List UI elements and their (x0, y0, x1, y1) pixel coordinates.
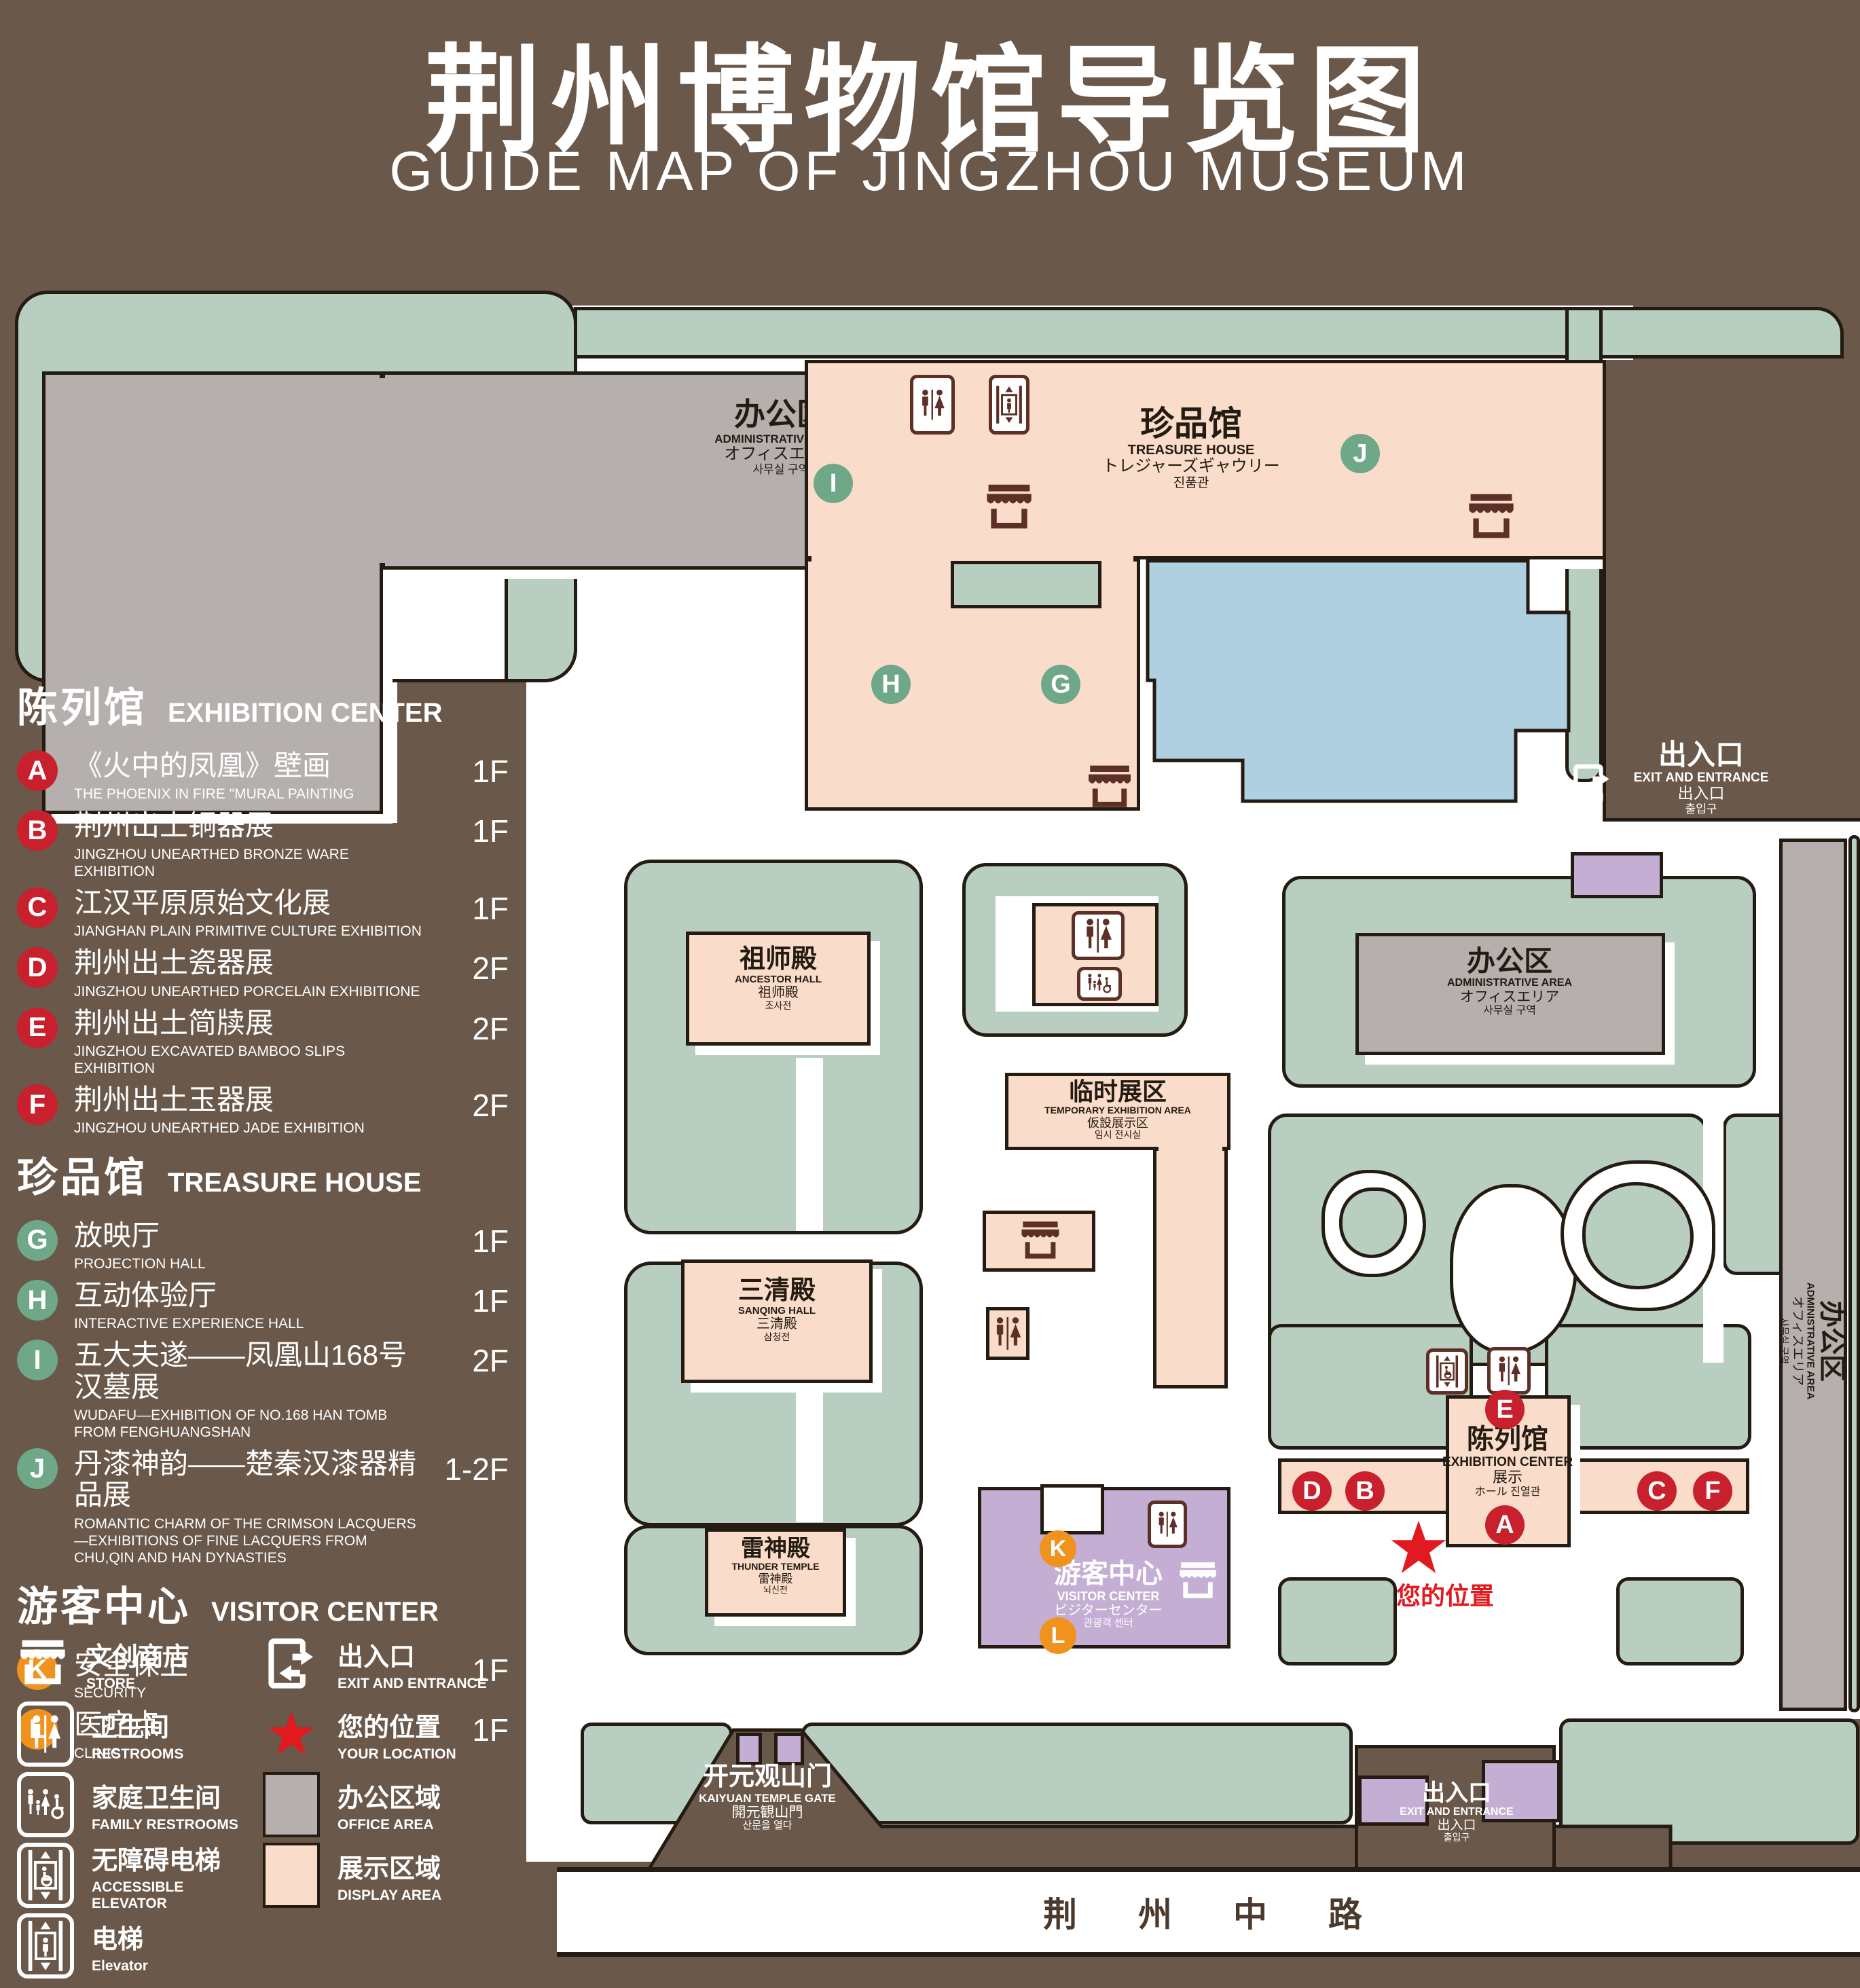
park-band-top (574, 307, 1844, 358)
legend-symbols: 文创商店 STORE 出入口 EXIT AND ENTRANCE 卫生间 RES… (17, 1628, 509, 1981)
sanqing-hall-en: SANQING HALL (738, 1306, 816, 1317)
exit-bottom-ko: 출입구 (1400, 1833, 1513, 1843)
page-subtitle: GUIDE MAP OF JINGZHOU MUSEUM (0, 140, 1860, 204)
temporary-exhibition-wing (1153, 1147, 1228, 1388)
park-ancestor (624, 860, 923, 1234)
family-restrooms-icon (1077, 967, 1122, 1001)
legend-symbol-family-restrooms: 家庭卫生间 FAMILY RESTROOMS (17, 1769, 263, 1840)
kaiyuan-gate-ko: 산문을 열다 (699, 1820, 836, 1832)
symbol-en: Elevator (92, 1958, 148, 1974)
symbol-zh: 办公区域 (338, 1777, 441, 1814)
item-en: JINGZHOU UNEARTHED PORCELAIN EXHIBITIONE (74, 983, 420, 1000)
treasure-house-en: TREASURE HOUSE (1102, 443, 1280, 458)
map-marker-f: F (1693, 1471, 1732, 1511)
store-icon (17, 1631, 69, 1696)
admin-strip-ja: オフィスエリア (1790, 1283, 1805, 1400)
path-sanqing (796, 1386, 823, 1522)
visitor-center-label: 游客中心 VISITOR CENTER ビジターセンター 관광객 센터 (1054, 1559, 1163, 1630)
legend-item-j: J 丹漆神韵——楚秦汉漆器精品展 ROMANTIC CHARM OF THE C… (17, 1448, 509, 1566)
admin-right-ja: オフィスエリア (1447, 989, 1572, 1006)
section-title-zh: 游客中心 (17, 1574, 191, 1633)
item-zh: 江汉平原原始文化展 (74, 887, 331, 919)
accessible-elevator-icon (17, 1843, 74, 1908)
marker-h-badge: H (17, 1280, 58, 1321)
exhibition-center-ko: ホール 진열관 (1442, 1486, 1573, 1498)
legend-symbol-exit: 出入口 EXIT AND ENTRANCE (263, 1628, 509, 1699)
legend-item-f: F 荆州出土玉器展 JINGZHOU UNEARTHED JADE EXHIBI… (17, 1084, 509, 1137)
section-title-zh: 珍品馆 (17, 1145, 147, 1204)
temporary-exhibition-en: TEMPORARY EXHIBITION AREA (1044, 1105, 1191, 1116)
marker-i-badge: I (17, 1340, 58, 1380)
item-en: ROMANTIC CHARM OF THE CRIMSON LACQUERS—E… (74, 1515, 427, 1567)
pond-right-island (1582, 1182, 1694, 1289)
item-floor: 2F (472, 950, 509, 987)
map-marker-h: H (871, 665, 911, 704)
kaiyuan-gate-en: KAIYUAN TEMPLE GATE (699, 1792, 836, 1805)
section-title-zh: 陈列馆 (17, 675, 147, 734)
treasure-house-ko: 진품관 (1102, 476, 1280, 490)
treasure-house-zh: 珍品馆 (1102, 405, 1280, 443)
guide-map-page: 荆州博物馆导览图 GUIDE MAP OF JINGZHOU MUSEUM 办公… (0, 0, 1860, 1988)
item-zh: 荆州出土简牍展 (74, 1007, 274, 1039)
exit-bottom-zh: 出入口 (1400, 1780, 1513, 1806)
symbol-zh: 卫生间 (92, 1706, 183, 1744)
admin-strip-right (1779, 839, 1847, 1711)
seam-patch (1159, 1142, 1222, 1156)
map-marker-g: G (1041, 665, 1080, 704)
item-zh: 互动体验厅 (74, 1279, 217, 1311)
park-exh-bottomleft (1278, 1577, 1397, 1665)
marker-a-badge: A (17, 750, 58, 791)
marker-b-badge: B (17, 810, 58, 851)
map-marker-d: D (1292, 1471, 1332, 1511)
exit-icon (263, 1631, 320, 1696)
exit-bottom-label: 出入口 EXIT AND ENTRANCE 出入口 출입구 (1400, 1780, 1513, 1843)
temporary-exhibition-ja: 仮設展示区 (1044, 1116, 1191, 1130)
exit-topright-ja: 出入口 (1634, 785, 1769, 803)
legend-symbol-elevator: 电梯 Elevator (17, 1911, 263, 1981)
map-marker-c: C (1637, 1471, 1677, 1511)
item-floor: 2F (472, 1087, 509, 1124)
store-icon (1017, 1219, 1063, 1263)
legend-item-h: H 互动体验厅 INTERACTIVE EXPERIENCE HALL 1F (17, 1280, 509, 1332)
item-floor: 1F (472, 813, 509, 849)
section-title-en: VISITOR CENTER (211, 1597, 439, 1627)
thunder-temple-ko: 뇌신전 (731, 1585, 819, 1596)
admin-right-label: 办公区 ADMINISTRATIVE AREA オフィスエリア 사무실 구역 (1447, 945, 1572, 1017)
legend-item-c: C 江汉平原原始文化展 JIANGHAN PLAIN PRIMITIVE CUL… (17, 887, 509, 940)
kaiyuan-gate-label: 开元观山门 KAIYUAN TEMPLE GATE 開元観山門 산문을 열다 (699, 1763, 836, 1832)
store-icon (1176, 1560, 1220, 1602)
temporary-exhibition-ko: 임시 전시실 (1044, 1130, 1191, 1141)
ancestor-hall-zh: 祖师殿 (735, 945, 822, 974)
admin-right-ko: 사무실 구역 (1447, 1005, 1572, 1017)
sanqing-hall-zh: 三清殿 (738, 1276, 816, 1306)
display-area-swatch (263, 1843, 320, 1908)
building-by-exit-topright (1571, 852, 1663, 898)
item-en: WUDAFU—EXHIBITION OF NO.168 HAN TOMB FRO… (74, 1407, 427, 1441)
symbol-en: DISPLAY AREA (338, 1888, 441, 1904)
map-marker-b: B (1345, 1471, 1385, 1511)
item-zh: 丹漆神韵——楚秦汉漆器精品展 (74, 1448, 416, 1511)
road-name: 荆 州 中 路 (1043, 1888, 1388, 1936)
symbol-zh: 出入口 (338, 1636, 487, 1673)
symbol-en: EXIT AND ENTRANCE (338, 1676, 487, 1692)
restrooms-icon (1487, 1347, 1531, 1395)
item-zh: 荆州出土铜器展 (74, 809, 274, 841)
marker-e-badge: E (17, 1008, 58, 1048)
park-exh-bottomright (1616, 1577, 1744, 1665)
item-en: PROJECTION HALL (74, 1255, 206, 1272)
location-star-icon (263, 1701, 320, 1767)
legend-symbol-location: 您的位置 YOUR LOCATION (263, 1699, 509, 1769)
exit-icon (1570, 762, 1613, 807)
symbol-en: RESTROOMS (92, 1746, 183, 1763)
symbol-en: ACCESSIBLE ELEVATOR (92, 1879, 263, 1912)
exhibition-center-en: EXHIBITION CENTER (1442, 1455, 1573, 1469)
lake (1059, 536, 1575, 815)
ancestor-hall-ko: 조사전 (735, 1001, 822, 1012)
legend-section-treasure-house: 珍品馆 TREASURE HOUSE (17, 1145, 509, 1204)
item-floor: 1F (472, 753, 509, 790)
section-title-en: TREASURE HOUSE (168, 1168, 421, 1198)
map-marker-i: I (814, 464, 853, 503)
legend-symbol-store: 文创商店 STORE (17, 1628, 263, 1699)
restrooms-icon (1148, 1501, 1187, 1548)
legend-symbol-office-area: 办公区域 OFFICE AREA (263, 1769, 509, 1840)
thunder-temple-zh: 雷神殿 (731, 1536, 819, 1562)
symbol-zh: 家庭卫生间 (92, 1777, 238, 1814)
marker-d-badge: D (17, 947, 58, 988)
treasure-house-label: 珍品馆 TREASURE HOUSE トレジャーズギャウリー 진품관 (1102, 405, 1280, 491)
legend-item-a: A 《火中的凤凰》壁画 THE PHOENIX IN FIRE "MURAL P… (17, 750, 509, 803)
ancestor-hall-label: 祖师殿 ANCESTOR HALL 祖师殿 조사전 (735, 945, 822, 1011)
restrooms-icon (990, 1312, 1025, 1355)
item-floor: 1-2F (444, 1451, 509, 1488)
symbol-zh: 您的位置 (338, 1706, 456, 1744)
item-zh: 五大夫遂——凤凰山168号汉墓展 (74, 1339, 407, 1402)
item-en: JIANGHAN PLAIN PRIMITIVE CULTURE EXHIBIT… (74, 923, 422, 940)
marker-g-badge: G (17, 1220, 58, 1261)
marker-f-badge: F (17, 1084, 58, 1125)
legend-item-d: D 荆州出土瓷器展 JINGZHOU UNEARTHED PORCELAIN E… (17, 947, 509, 999)
symbol-en: YOUR LOCATION (338, 1746, 456, 1763)
restrooms-icon (17, 1701, 74, 1767)
marker-c-badge: C (17, 887, 58, 928)
legend-symbol-accessible-elevator: 无障碍电梯 ACCESSIBLE ELEVATOR (17, 1840, 263, 1911)
treasure-house-ja: トレジャーズギャウリー (1102, 458, 1280, 476)
exhibition-center-ja: 展示 (1442, 1469, 1573, 1486)
sanqing-hall-ko: 삼청전 (738, 1332, 816, 1343)
item-zh: 《火中的凤凰》壁画 (74, 750, 331, 781)
admin-strip-zh: 办公区 (1817, 1283, 1848, 1400)
legend-panel: 陈列馆 EXHIBITION CENTER A 《火中的凤凰》壁画 THE PH… (17, 668, 509, 1769)
temporary-exhibition-zh: 临时展区 (1044, 1078, 1191, 1105)
symbol-zh: 电梯 (92, 1918, 148, 1955)
thunder-temple-en: THUNDER TEMPLE (731, 1562, 819, 1572)
seam-patch (375, 378, 395, 563)
sanqing-hall-label: 三清殿 SANQING HALL 三清殿 삼청전 (738, 1276, 816, 1342)
map-marker-l: L (1040, 1617, 1076, 1654)
visitor-center-en: VISITOR CENTER (1054, 1589, 1163, 1603)
item-en: THE PHOENIX IN FIRE "MURAL PAINTING (74, 786, 354, 803)
item-en: JINGZHOU EXCAVATED BAMBOO SLIPS EXHIBITI… (74, 1043, 427, 1077)
symbol-zh: 无障碍电梯 (92, 1839, 263, 1877)
exit-topright-label: 出入口 EXIT AND ENTRANCE 出入口 출입구 (1634, 739, 1769, 815)
your-location-star-icon (1390, 1520, 1447, 1577)
temporary-exhibition-label: 临时展区 TEMPORARY EXHIBITION AREA 仮設展示区 임시 … (1044, 1078, 1191, 1141)
item-floor: 1F (472, 890, 509, 927)
elevator-icon (17, 1913, 74, 1978)
sanqing-hall-ja: 三清殿 (738, 1317, 816, 1331)
map-marker-a: A (1485, 1505, 1525, 1545)
store-icon (1465, 492, 1517, 543)
exhibition-center-label: 陈列馆 EXHIBITION CENTER 展示 ホール 진열관 (1442, 1424, 1573, 1498)
item-en: JINGZHOU UNEARTHED JADE EXHIBITION (74, 1120, 365, 1137)
item-en: JINGZHOU UNEARTHED BRONZE WARE EXHIBITIO… (74, 846, 427, 880)
restrooms-icon (910, 375, 955, 435)
item-en: INTERACTIVE EXPERIENCE HALL (74, 1315, 304, 1332)
ancestor-hall-ja: 祖师殿 (735, 985, 822, 1000)
legend-item-i: I 五大夫遂——凤凰山168号汉墓展 WUDAFU—EXHIBITION OF … (17, 1340, 509, 1441)
exit-topright-en: EXIT AND ENTRANCE (1634, 771, 1769, 785)
thunder-temple-label: 雷神殿 THUNDER TEMPLE 雷神殿 뇌신전 (731, 1536, 819, 1595)
legend-symbol-display-area: 展示区域 DISPLAY AREA (263, 1840, 509, 1911)
admin-right-zh: 办公区 (1447, 945, 1572, 977)
kaiyuan-gate-ja: 開元観山門 (699, 1805, 836, 1821)
gate-post (774, 1733, 804, 1765)
symbol-en: STORE (86, 1676, 189, 1692)
section-title-en: EXHIBITION CENTER (168, 698, 442, 729)
symbol-en: OFFICE AREA (338, 1817, 441, 1833)
thunder-temple-ja: 雷神殿 (731, 1572, 819, 1585)
legend-item-b: B 荆州出土铜器展 JINGZHOU UNEARTHED BRONZE WARE… (17, 810, 509, 880)
map-marker-j: J (1341, 434, 1380, 473)
symbol-en: FAMILY RESTROOMS (92, 1817, 238, 1833)
legend-section-exhibition-center: 陈列馆 EXHIBITION CENTER (17, 675, 509, 734)
legend-symbol-restrooms: 卫生间 RESTROOMS (17, 1699, 263, 1769)
admin-right-en: ADMINISTRATIVE AREA (1447, 977, 1572, 989)
office-area-swatch (263, 1772, 320, 1837)
store-icon (983, 482, 1035, 534)
map-marker-k: K (1040, 1530, 1076, 1567)
visitor-center-zh: 游客中心 (1054, 1559, 1163, 1589)
path-ancestor (796, 1058, 823, 1231)
legend-item-e: E 荆州出土简牍展 JINGZHOU EXCAVATED BAMBOO SLIP… (17, 1008, 509, 1078)
exit-topright-zh: 出入口 (1634, 739, 1769, 771)
park-strip-right-edge (1848, 835, 1860, 1712)
kaiyuan-gate-zh: 开元观山门 (699, 1763, 836, 1792)
visitor-center-ja: ビジターセンター (1054, 1603, 1163, 1618)
marker-j-badge: J (17, 1448, 58, 1489)
item-floor: 1F (472, 1283, 509, 1319)
item-zh: 荆州出土瓷器展 (74, 946, 274, 978)
legend-item-g: G 放映厅 PROJECTION HALL 1F (17, 1220, 509, 1272)
map-marker-e: E (1485, 1390, 1525, 1429)
restrooms-icon (1072, 911, 1125, 960)
family-restrooms-icon (17, 1772, 74, 1837)
item-floor: 2F (472, 1342, 509, 1379)
item-floor: 2F (472, 1010, 509, 1047)
item-zh: 荆州出土玉器展 (74, 1084, 274, 1116)
exit-bottom-en: EXIT AND ENTRANCE (1400, 1806, 1513, 1818)
admin-strip-en: ADMINISTRATIVE AREA (1804, 1283, 1816, 1400)
item-zh: 放映厅 (74, 1219, 160, 1251)
item-floor: 1F (472, 1223, 509, 1259)
visitor-center-notch (1040, 1484, 1104, 1534)
symbol-zh: 文创商店 (86, 1636, 189, 1673)
exit-topright-ko: 출입구 (1634, 803, 1769, 815)
gate-post (736, 1733, 762, 1765)
accessible-elevator-icon (1426, 1348, 1468, 1395)
symbol-zh: 展示区域 (338, 1847, 441, 1885)
legend-section-visitor-center: 游客中心 VISITOR CENTER (17, 1574, 509, 1633)
exit-bottom-ja: 出入口 (1400, 1818, 1513, 1833)
your-location-text: 您的位置 (1396, 1577, 1494, 1612)
elevator-icon (989, 375, 1029, 435)
admin-strip-ko: 사무실 구역 (1779, 1283, 1789, 1400)
ancestor-hall-en: ANCESTOR HALL (735, 974, 822, 986)
admin-strip-label: 办公区 ADMINISTRATIVE AREA オフィスエリア 사무실 구역 (1779, 1283, 1847, 1400)
